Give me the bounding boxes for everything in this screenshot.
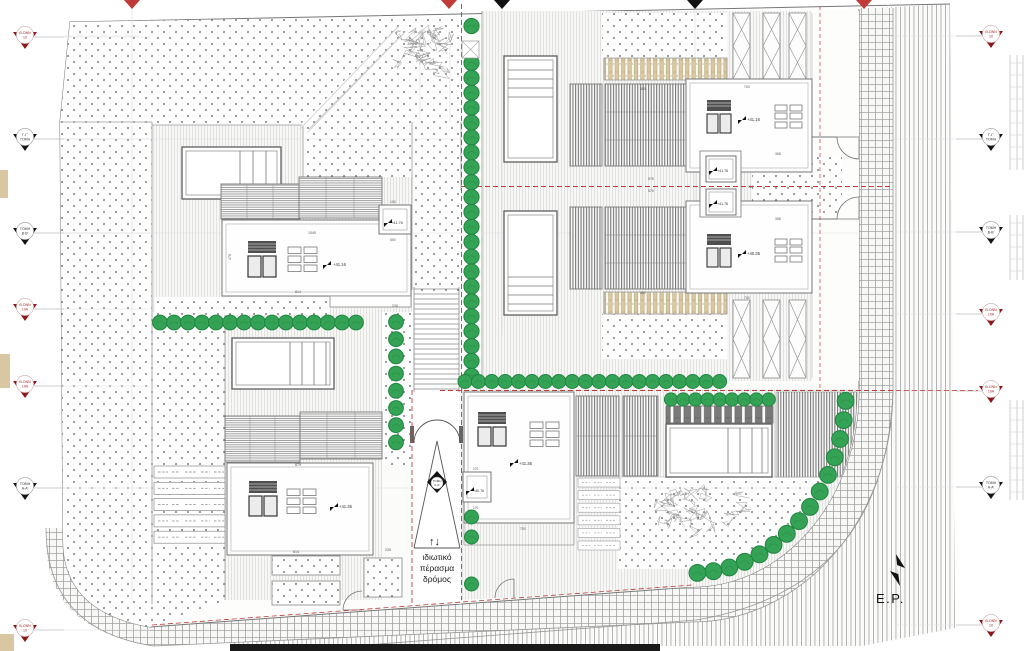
- svg-text:A-A': A-A': [434, 483, 440, 487]
- svg-text:470: 470: [228, 254, 232, 260]
- svg-text:115: 115: [748, 185, 754, 189]
- svg-text:879: 879: [295, 463, 301, 467]
- svg-text:ιδιωτικό: ιδιωτικό: [422, 552, 451, 562]
- svg-text:B-ONN: B-ONN: [19, 380, 31, 384]
- svg-text:480: 480: [640, 87, 646, 91]
- svg-text:230: 230: [392, 304, 398, 308]
- svg-text:575: 575: [648, 189, 654, 193]
- svg-text:Γ-Γ': Γ-Γ': [22, 133, 28, 137]
- svg-text:814: 814: [293, 550, 299, 554]
- svg-text:1040: 1040: [308, 231, 316, 235]
- svg-text:10: 10: [23, 629, 27, 633]
- svg-text:+41.36: +41.36: [519, 461, 533, 466]
- svg-text:814: 814: [295, 290, 301, 294]
- svg-text:10: 10: [989, 624, 993, 628]
- svg-text:308: 308: [775, 217, 781, 221]
- svg-text:TOMH: TOMH: [986, 481, 997, 485]
- svg-text:E.P.: E.P.: [876, 591, 905, 606]
- svg-text:TOMH: TOMH: [20, 227, 31, 231]
- svg-text:A-A': A-A': [22, 487, 29, 491]
- svg-text:+40.36: +40.36: [747, 251, 761, 256]
- svg-text:B-ONN: B-ONN: [985, 385, 997, 389]
- svg-text:+41.76: +41.76: [717, 202, 728, 206]
- svg-text:↑↓: ↑↓: [429, 536, 440, 548]
- svg-text:480: 480: [640, 291, 646, 295]
- svg-text:10A: 10A: [22, 385, 29, 389]
- svg-text:TOMH: TOMH: [986, 138, 997, 142]
- svg-text:170: 170: [473, 506, 479, 510]
- svg-text:+41.76: +41.76: [391, 221, 403, 225]
- svg-text:TOMH: TOMH: [20, 138, 31, 142]
- svg-text:B-ONN: B-ONN: [985, 308, 997, 312]
- svg-text:600: 600: [390, 238, 396, 242]
- svg-text:10A: 10A: [988, 390, 995, 394]
- svg-text:700: 700: [744, 85, 750, 89]
- svg-text:Γ-Γ': Γ-Γ': [988, 133, 994, 137]
- svg-text:+40.76: +40.76: [473, 489, 484, 493]
- svg-text:10: 10: [23, 36, 27, 40]
- svg-text:+41.36: +41.36: [339, 504, 353, 509]
- svg-text:10A: 10A: [22, 308, 29, 312]
- svg-text:170: 170: [473, 467, 479, 471]
- svg-text:B-B': B-B': [22, 232, 29, 236]
- svg-text:δρόμος: δρόμος: [423, 574, 451, 584]
- svg-text:700: 700: [520, 527, 526, 531]
- svg-text:TOMH: TOMH: [986, 226, 997, 230]
- svg-text:+41.16: +41.16: [333, 262, 347, 267]
- svg-text:A-A': A-A': [988, 486, 995, 490]
- svg-text:308: 308: [775, 152, 781, 156]
- svg-text:10: 10: [989, 35, 993, 39]
- svg-text:+41.16: +41.16: [747, 117, 761, 122]
- svg-text:B-ONN: B-ONN: [19, 303, 31, 307]
- svg-text:100: 100: [390, 200, 396, 204]
- svg-text:575: 575: [648, 177, 654, 181]
- svg-text:πέρασμα: πέρασμα: [420, 563, 455, 573]
- svg-text:+41.76: +41.76: [717, 169, 728, 173]
- svg-text:B-B': B-B': [988, 231, 995, 235]
- svg-text:10A: 10A: [988, 313, 995, 317]
- svg-text:B-ONN: B-ONN: [19, 31, 31, 35]
- svg-text:230: 230: [385, 548, 391, 552]
- svg-text:TOMH: TOMH: [20, 482, 31, 486]
- svg-text:B-ONN: B-ONN: [985, 30, 997, 34]
- svg-text:B-ONN: B-ONN: [985, 619, 997, 623]
- svg-text:700: 700: [744, 296, 750, 300]
- svg-text:B-ONN: B-ONN: [19, 624, 31, 628]
